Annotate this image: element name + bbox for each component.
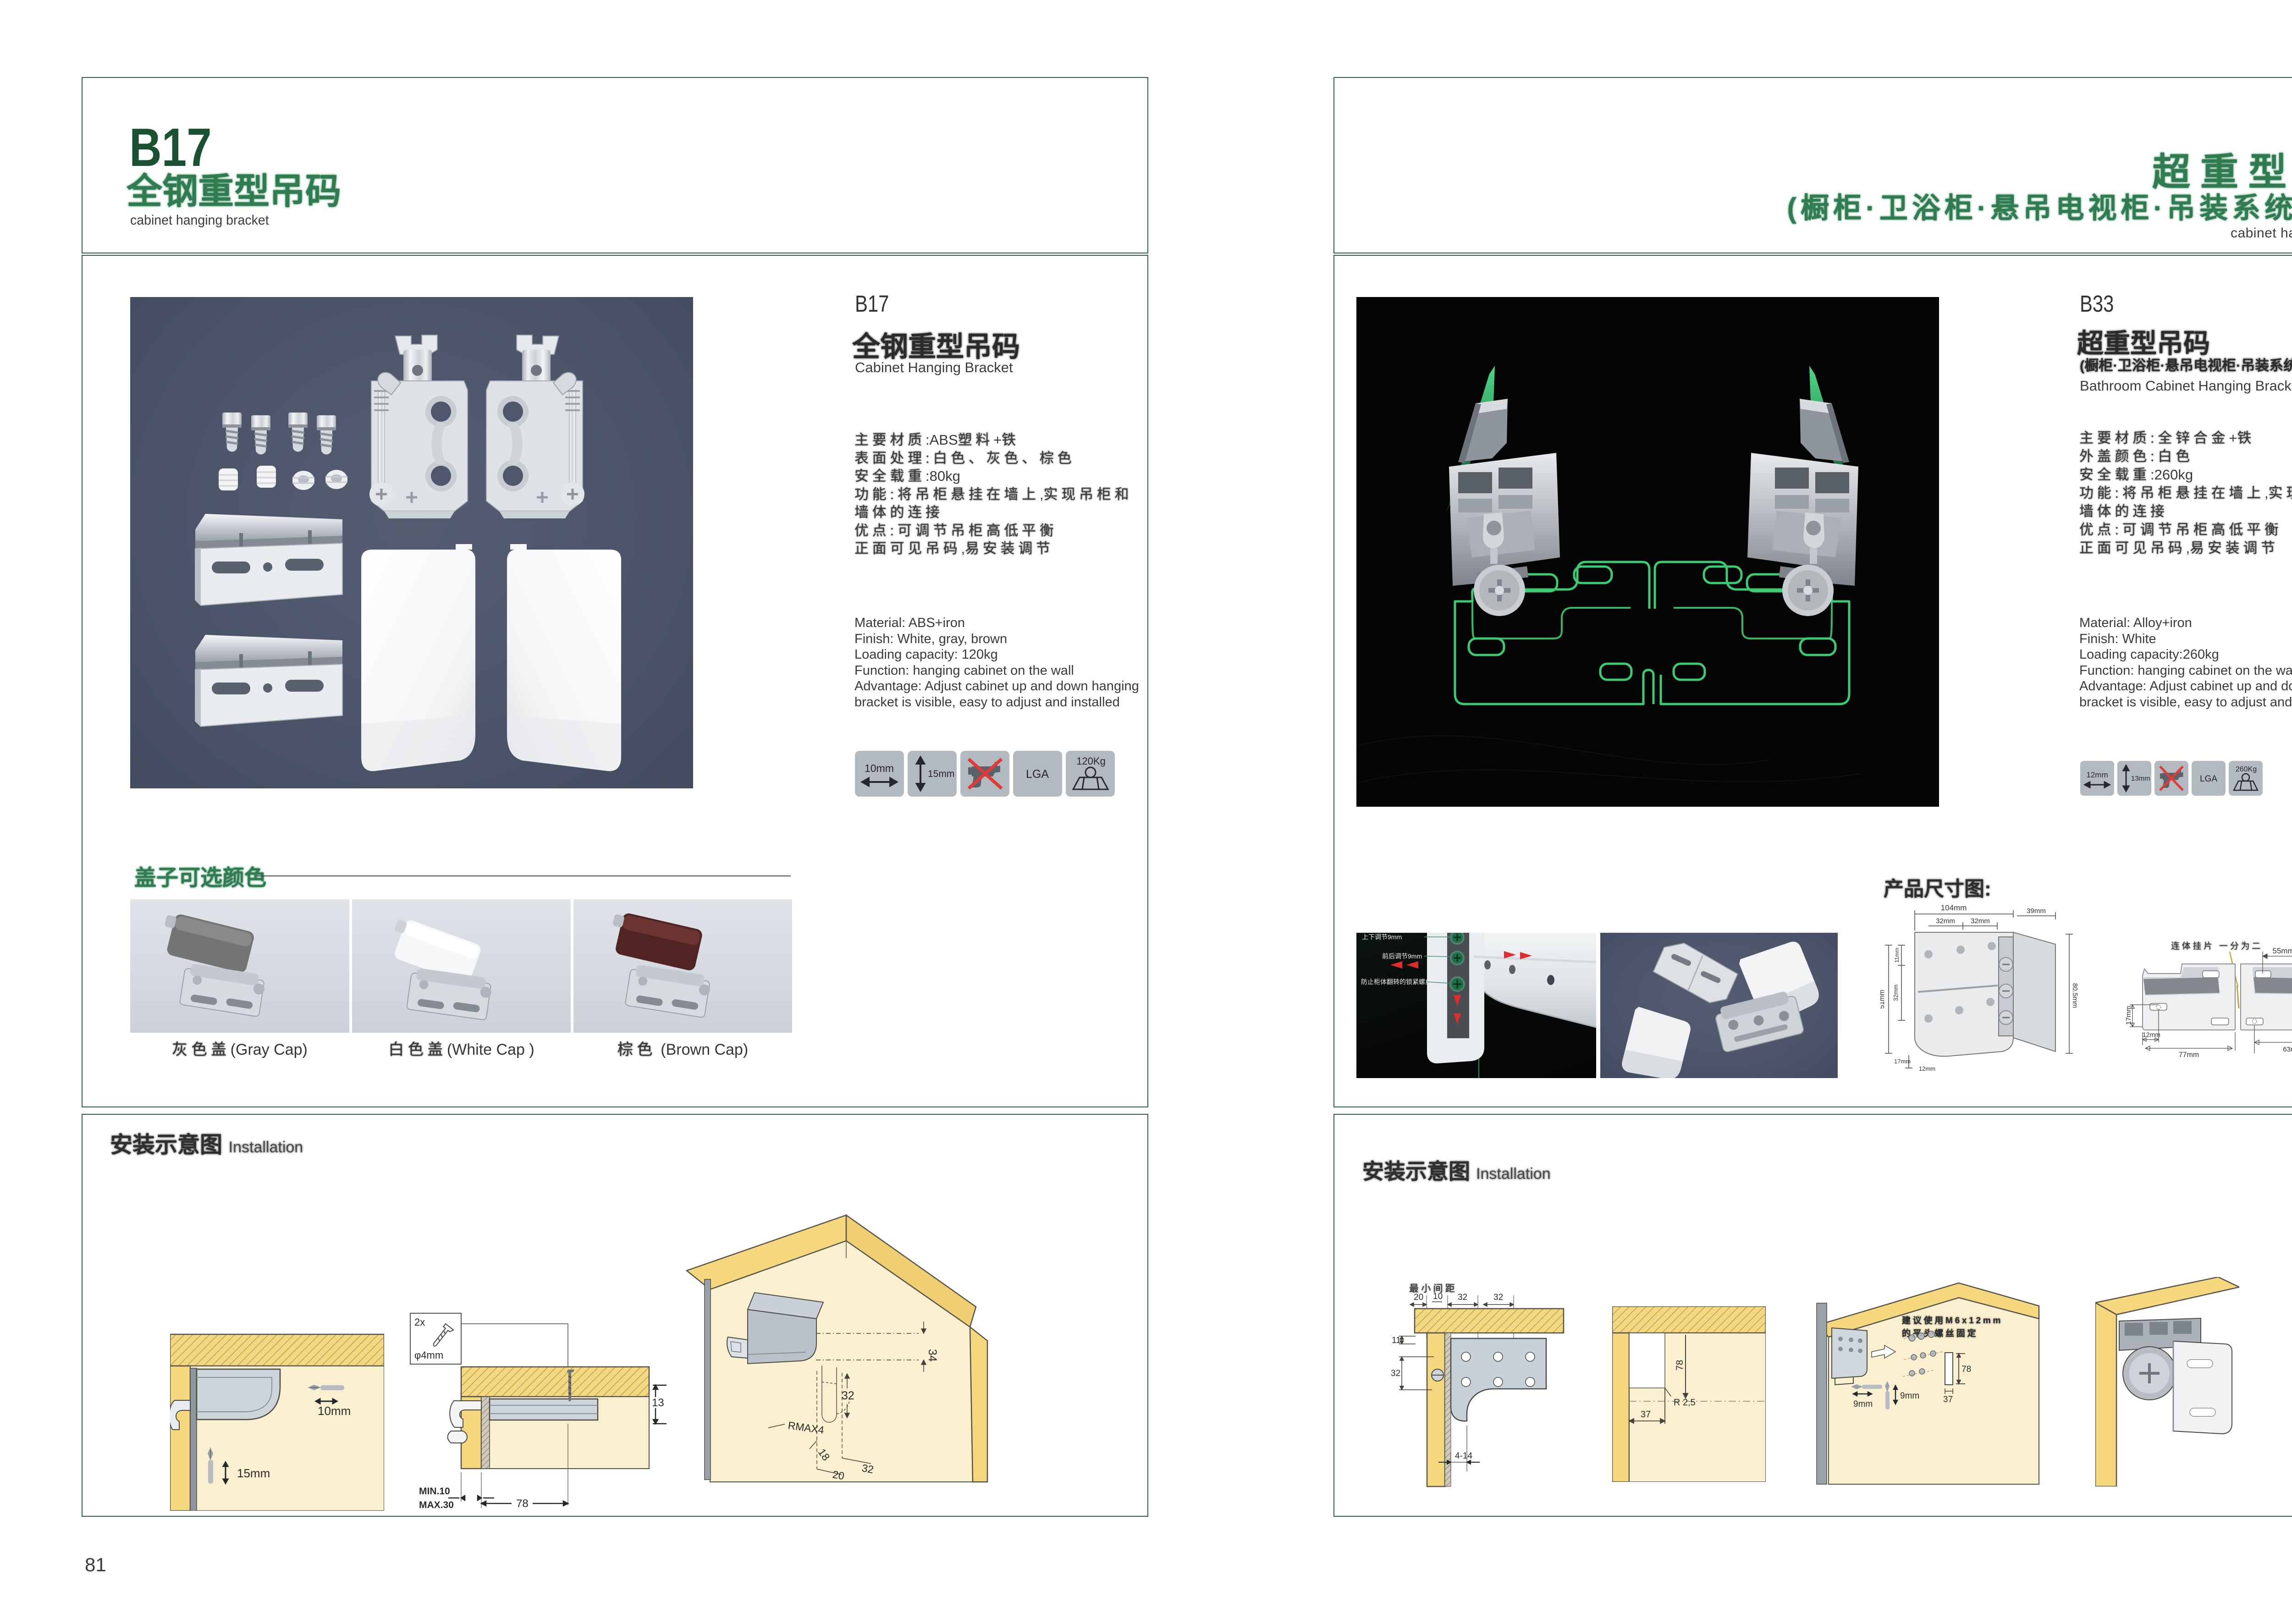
svg-text:20: 20 xyxy=(1414,1293,1423,1302)
svg-text:260Kg: 260Kg xyxy=(2236,765,2257,773)
svg-text:17mm: 17mm xyxy=(2125,1006,2132,1025)
svg-text:建议使用M6x12mm: 建议使用M6x12mm xyxy=(1902,1315,2003,1326)
svg-text:10mm: 10mm xyxy=(318,1404,351,1418)
svg-text:32: 32 xyxy=(861,1462,875,1475)
svg-text:39mm: 39mm xyxy=(2027,907,2046,915)
svg-text:32mm: 32mm xyxy=(1971,917,1990,925)
svg-text:13: 13 xyxy=(652,1397,664,1409)
svg-text:12mm: 12mm xyxy=(2086,771,2108,779)
svg-text:34: 34 xyxy=(926,1349,939,1362)
svg-text:78: 78 xyxy=(1675,1360,1685,1371)
svg-text:51mm: 51mm xyxy=(1880,990,1886,1009)
svg-text:R 2,5: R 2,5 xyxy=(1674,1398,1696,1408)
svg-text:防止柜体翻转的锁紧螺丝: 防止柜体翻转的锁紧螺丝 xyxy=(1361,978,1432,985)
svg-text:13mm: 13mm xyxy=(2131,775,2150,782)
svg-text:9mm: 9mm xyxy=(1900,1391,1919,1401)
svg-text:104mm: 104mm xyxy=(1941,903,1967,912)
svg-text:32mm: 32mm xyxy=(1936,917,1955,925)
svg-text:17mm: 17mm xyxy=(1894,1058,1911,1065)
svg-text:37: 37 xyxy=(1943,1395,1953,1404)
svg-text:MIN.10: MIN.10 xyxy=(419,1486,450,1497)
svg-text:LGA: LGA xyxy=(1026,768,1049,781)
svg-text:15mm: 15mm xyxy=(928,769,954,779)
svg-text:11mm: 11mm xyxy=(1894,948,1900,963)
svg-text:120Kg: 120Kg xyxy=(1076,755,1106,767)
svg-text:12mm: 12mm xyxy=(2143,1031,2160,1038)
svg-text:77mm: 77mm xyxy=(2179,1051,2199,1059)
svg-text:10: 10 xyxy=(1433,1292,1443,1301)
svg-text:11: 11 xyxy=(1392,1336,1401,1345)
svg-text:78: 78 xyxy=(516,1497,529,1510)
svg-text:32: 32 xyxy=(1493,1293,1503,1302)
svg-text:10mm: 10mm xyxy=(865,762,894,774)
svg-text:78: 78 xyxy=(1961,1365,1971,1374)
svg-text:2x: 2x xyxy=(414,1316,425,1328)
svg-text:37: 37 xyxy=(1641,1409,1651,1420)
svg-text:32mm: 32mm xyxy=(1892,985,1899,1001)
svg-text:9mm: 9mm xyxy=(1853,1399,1873,1409)
svg-text:32: 32 xyxy=(1458,1293,1467,1302)
svg-text:前后调节9mm: 前后调节9mm xyxy=(1382,952,1422,960)
svg-text:上下调节9mm: 上下调节9mm xyxy=(1362,933,1402,941)
svg-text:32: 32 xyxy=(842,1389,854,1402)
svg-text:20: 20 xyxy=(832,1468,845,1482)
svg-text:连体挂片 一分为二: 连体挂片 一分为二 xyxy=(2171,941,2263,951)
svg-text:MAX.30: MAX.30 xyxy=(419,1500,454,1510)
svg-text:4-14: 4-14 xyxy=(1455,1451,1472,1461)
svg-text:φ4mm: φ4mm xyxy=(414,1349,443,1361)
svg-text:55mm: 55mm xyxy=(2272,947,2292,955)
svg-text:32: 32 xyxy=(1391,1369,1400,1378)
svg-text:63mm: 63mm xyxy=(2283,1046,2292,1053)
svg-text:12mm: 12mm xyxy=(1919,1065,1935,1072)
svg-text:80.5mm: 80.5mm xyxy=(2071,983,2077,1008)
svg-text:15mm: 15mm xyxy=(237,1466,270,1480)
svg-text:LGA: LGA xyxy=(2200,774,2217,784)
